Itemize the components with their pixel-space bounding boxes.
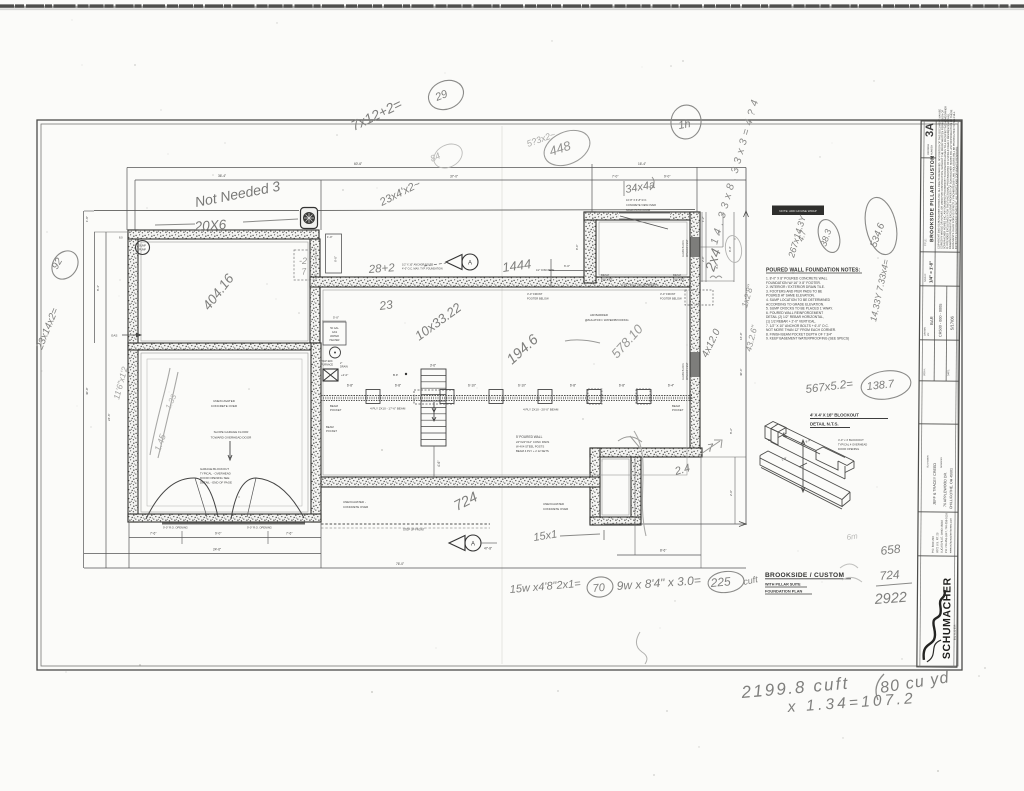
svg-text:POCKET: POCKET <box>673 278 685 282</box>
svg-text:4 PLY 2X10 - 17'-6" BEAM: 4 PLY 2X10 - 17'-6" BEAM <box>370 407 406 411</box>
svg-text:9. KEEP BASEMENT WATERPROOFIN: 9. KEEP BASEMENT WATERPROOFING (SEE SPEC… <box>766 337 849 341</box>
svg-text:WINDOW VENT: WINDOW VENT <box>686 239 689 257</box>
svg-text:8'-6": 8'-6" <box>575 244 579 250</box>
svg-text:DETAIL N.T.S.: DETAIL N.T.S. <box>810 422 839 427</box>
svg-text:B U I L D E R: B U I L D E R <box>953 625 957 641</box>
svg-text:24'-6": 24'-6" <box>107 413 111 421</box>
svg-text:37'-0": 37'-0" <box>450 175 458 179</box>
svg-text:DRAWING: DRAWING <box>927 144 930 155</box>
svg-text:www.schumacherhomes.com: www.schumacherhomes.com <box>948 517 952 553</box>
svg-text:SCHUMACHER: SCHUMACHER <box>941 577 954 659</box>
svg-text:28+2: 28+2 <box>367 262 395 276</box>
svg-text:36'-4": 36'-4" <box>218 174 226 178</box>
svg-text:4' X 4' X 16" BLOCKOUT: 4' X 4' X 16" BLOCKOUT <box>810 413 859 418</box>
svg-text:6'-0": 6'-0" <box>334 256 338 262</box>
svg-text:5'-0": 5'-0" <box>333 316 339 320</box>
svg-text:GARAGE BLOCKOUT: GARAGE BLOCKOUT <box>200 467 229 471</box>
svg-text:GLASS BLOCK: GLASS BLOCK <box>682 363 685 380</box>
svg-text:W 4X4 STEEL POSTS: W 4X4 STEEL POSTS <box>516 445 544 449</box>
svg-text:CHILLICOTHE, OH 45601: CHILLICOTHE, OH 45601 <box>949 468 953 509</box>
svg-text:POCKET: POCKET <box>330 408 342 412</box>
svg-text:47'-8": 47'-8" <box>484 547 492 551</box>
svg-text:1h: 1h <box>677 118 691 132</box>
svg-text:3'-0" FRONT: 3'-0" FRONT <box>660 292 676 296</box>
svg-text:76'-0": 76'-0" <box>396 562 404 566</box>
svg-text:16'-0": 16'-0" <box>739 332 743 340</box>
svg-text:POCKET: POCKET <box>326 429 337 433</box>
svg-text:P.O. BOX 203: P.O. BOX 203 <box>931 536 935 553</box>
svg-text:2": 2" <box>768 438 771 442</box>
svg-text:24'-6": 24'-6" <box>213 548 221 552</box>
svg-text:1/2" CONCRETE: 1/2" CONCRETE <box>536 269 555 272</box>
svg-text:40'-0": 40'-0" <box>85 387 89 395</box>
svg-text:JOB #:: JOB #: <box>923 368 926 376</box>
svg-text:CUSTOMER:: CUSTOMER: <box>927 454 929 467</box>
svg-text:DOOR OPENING SEE: DOOR OPENING SEE <box>200 476 229 480</box>
svg-text:GAS: GAS <box>332 331 338 334</box>
svg-text:2 PLY 9 1/2" LVL HDR BEAM: 2 PLY 9 1/2" LVL HDR BEAM <box>622 283 658 287</box>
svg-text:40'-4": 40'-4" <box>739 368 743 376</box>
svg-text:WINDOW VENT: WINDOW VENT <box>686 362 689 380</box>
svg-text:724: 724 <box>879 567 900 583</box>
svg-text:1/2" X 10" ANCHOR BOLTS: 1/2" X 10" ANCHOR BOLTS <box>402 264 434 267</box>
svg-text:76 APPLEWOOD DR.: 76 APPLEWOOD DR. <box>943 472 947 507</box>
svg-text:FOUNDATION PLAN: FOUNDATION PLAN <box>765 589 803 594</box>
svg-text:7'-6": 7'-6" <box>150 532 156 536</box>
svg-text:UNEXCAVATED -: UNEXCAVATED - <box>343 500 366 504</box>
svg-text:CONCRETE OVER: CONCRETE OVER <box>543 507 568 511</box>
svg-text:3272 U.S. RT. 23: 3272 U.S. RT. 23 <box>935 532 939 553</box>
svg-text:UNEXCAVATED: UNEXCAVATED <box>543 502 564 506</box>
svg-text:HEATER: HEATER <box>330 339 340 342</box>
svg-text:A: A <box>471 542 475 548</box>
svg-text:4'-6": 4'-6" <box>437 461 441 467</box>
svg-text:B.P.: B.P. <box>393 373 398 377</box>
svg-text:POCKET: POCKET <box>601 278 613 282</box>
svg-text:8.0: 8.0 <box>119 236 123 240</box>
svg-text:1'-2": 1'-2" <box>701 216 705 222</box>
svg-text:3A: 3A <box>924 123 936 137</box>
svg-text:A: A <box>468 261 472 267</box>
svg-text:9'-0" R.O. OPENING: 9'-0" R.O. OPENING <box>247 526 272 530</box>
svg-text:9'-0" R.O. OPENING: 9'-0" R.O. OPENING <box>163 526 188 530</box>
svg-text:60'-6": 60'-6" <box>354 162 362 166</box>
svg-text:SLOPE GARAGE FLOOR: SLOPE GARAGE FLOOR <box>214 430 250 434</box>
svg-text:23: 23 <box>377 297 393 313</box>
svg-text:TITLE:: TITLE: <box>924 238 927 246</box>
svg-text:BEAM 4 PLY + 2 12 SETS: BEAM 4 PLY + 2 12 SETS <box>516 449 549 453</box>
svg-text:658: 658 <box>880 542 902 558</box>
svg-text:CR500 - 000 - 0005: CR500 - 000 - 0005 <box>938 304 942 337</box>
svg-text:AIR BARRIER: AIR BARRIER <box>590 313 608 317</box>
svg-text:DATE:: DATE: <box>947 369 950 376</box>
svg-text:DRAWN: DRAWN <box>923 327 926 336</box>
svg-text:8'-2": 8'-2" <box>729 428 733 434</box>
svg-text:DOOR OPENING: DOOR OPENING <box>838 447 859 451</box>
svg-text:4 PLY 2X10 - 20'-0" BEAM: 4 PLY 2X10 - 20'-0" BEAM <box>523 408 559 412</box>
svg-text:50 GAL: 50 GAL <box>330 327 339 330</box>
svg-text:6'-0": 6'-0" <box>564 264 570 268</box>
svg-text:4'-0" O.C. MAX. TYP. FOUNDATIO: 4'-0" O.C. MAX. TYP. FOUNDATION <box>402 268 443 271</box>
svg-text:4'-0" x 4' BLOCKOUT: 4'-0" x 4' BLOCKOUT <box>838 438 864 442</box>
svg-text:EXTENT BY SCHUMACHER HOMES INC: EXTENT BY SCHUMACHER HOMES INC. ALL RIGH… <box>954 146 959 249</box>
svg-text:9'-4": 9'-4" <box>728 246 732 252</box>
svg-text:FOOTER BELOW: FOOTER BELOW <box>660 297 682 301</box>
svg-text:WITH PILLAR SUITE: WITH PILLAR SUITE <box>765 583 801 587</box>
svg-text:TYPICAL - OVERHEAD: TYPICAL - OVERHEAD <box>200 472 231 476</box>
svg-text:8'-4": 8'-4" <box>96 285 100 291</box>
svg-text:POCKET: POCKET <box>672 408 684 412</box>
svg-text:ADDRESS:: ADDRESS: <box>940 456 943 468</box>
svg-text:BY:: BY: <box>928 332 930 336</box>
svg-text:UNEXCAVATED: UNEXCAVATED <box>213 399 236 403</box>
svg-text:16'-4": 16'-4" <box>638 162 646 166</box>
svg-text:CONCRETE OVER: CONCRETE OVER <box>343 505 368 509</box>
svg-text:20X6: 20X6 <box>193 217 227 234</box>
svg-text:INSULATION / WATERPROOFING: INSULATION / WATERPROOFING <box>585 318 629 322</box>
svg-text:70: 70 <box>592 582 606 595</box>
svg-text:BAR: BAR <box>929 316 934 325</box>
svg-text:2922: 2922 <box>873 590 907 608</box>
svg-text:CONCRETE VIEW OVER: CONCRETE VIEW OVER <box>626 203 656 207</box>
svg-text:SOHO PATIO DOOR: SOHO PATIO DOOR <box>626 208 650 212</box>
svg-text:24"X24"X12" CONC PADS: 24"X24"X12" CONC PADS <box>516 440 549 444</box>
svg-text:PH: 740-353-1847, 740-259-5116: PH: 740-353-1847, 740-259-5116 <box>944 513 948 554</box>
svg-text:16'-8" X 6'-8" R.O.: 16'-8" X 6'-8" R.O. <box>626 198 647 202</box>
svg-text:NOTE: ADD HOUSE WRAP: NOTE: ADD HOUSE WRAP <box>779 209 817 213</box>
svg-text:FOOTER BELOW: FOOTER BELOW <box>527 297 549 301</box>
svg-text:9'-0": 9'-0" <box>664 175 670 179</box>
svg-text:FURNACE: FURNACE <box>321 364 333 367</box>
svg-text:DRAIN: DRAIN <box>340 366 348 369</box>
svg-text:SUMP: SUMP <box>139 245 146 248</box>
svg-text:JEFF & TRACEY CREED: JEFF & TRACEY CREED <box>933 463 937 505</box>
svg-text:GLASS BLOCK: GLASS BLOCK <box>682 240 685 257</box>
svg-text:5/17/06: 5/17/06 <box>950 315 955 330</box>
svg-text:1'-0": 1'-0" <box>327 235 333 239</box>
svg-text:LUCASVILLE, OHIO 45648: LUCASVILLE, OHIO 45648 <box>940 520 944 553</box>
svg-text:6m: 6m <box>846 531 859 542</box>
svg-text:TOWARD OVERHEAD DOOR: TOWARD OVERHEAD DOOR <box>211 436 253 440</box>
svg-text:6'-8": 6'-8" <box>347 384 353 388</box>
svg-text:1/4" = 1'-0": 1/4" = 1'-0" <box>928 261 933 283</box>
svg-text:-2: -2 <box>299 256 307 266</box>
svg-text:6'-10": 6'-10" <box>468 384 476 388</box>
svg-text:NUMBER: NUMBER <box>931 145 933 155</box>
svg-text:5' POURED WALL: 5' POURED WALL <box>516 435 543 439</box>
svg-text:225: 225 <box>709 574 731 590</box>
svg-text:6'-8": 6'-8" <box>619 384 625 388</box>
svg-text:TYPICAL 4 OVERHEAD: TYPICAL 4 OVERHEAD <box>838 443 867 447</box>
svg-text:6'-8": 6'-8" <box>395 384 401 388</box>
svg-text:BROOKSIDE / CUSTOM: BROOKSIDE / CUSTOM <box>765 572 844 579</box>
svg-text:6'-10": 6'-10" <box>518 384 526 388</box>
svg-text:1'-8": 1'-8" <box>85 216 89 222</box>
svg-text:WATER: WATER <box>330 335 339 338</box>
svg-text:3'-0" FRONT: 3'-0" FRONT <box>527 292 543 296</box>
svg-text:BROOKSIDE PILLAR / CUSTOM: BROOKSIDE PILLAR / CUSTOM <box>929 155 936 242</box>
svg-text:6'-8": 6'-8" <box>570 384 576 388</box>
svg-text:BEAM: BEAM <box>326 425 334 429</box>
svg-text:6'-4": 6'-4" <box>668 384 674 388</box>
svg-text:CONCRETE OVER: CONCRETE OVER <box>211 404 238 408</box>
svg-text:8'-6": 8'-6" <box>660 549 666 553</box>
svg-text:2'-0": 2'-0" <box>729 490 733 496</box>
svg-text:9'-0": 9'-0" <box>215 532 221 536</box>
svg-text:7'-0": 7'-0" <box>612 175 618 179</box>
svg-text:+2'-0": +2'-0" <box>341 373 348 377</box>
svg-text:PUMP: PUMP <box>139 249 146 252</box>
svg-text:GAS: GAS <box>111 334 117 338</box>
svg-text:SCALE:: SCALE: <box>924 273 927 282</box>
svg-text:3'-6": 3'-6" <box>430 364 436 368</box>
svg-text:7'-6": 7'-6" <box>286 532 292 536</box>
